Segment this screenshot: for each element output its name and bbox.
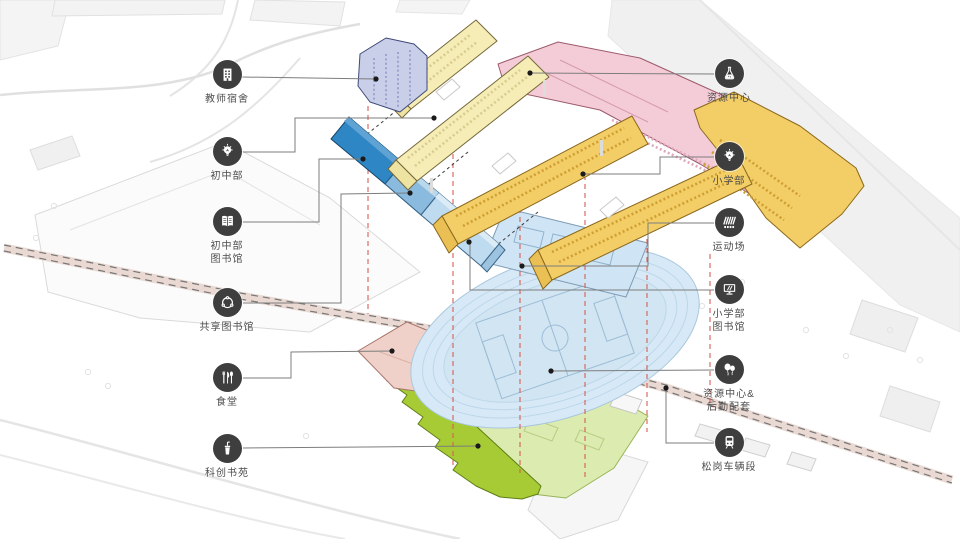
callout-label: 松岗车辆段 <box>670 461 788 474</box>
callout-label: 食堂 <box>168 396 286 409</box>
callout-teacher-dorm: 教师宿舍 <box>168 60 286 106</box>
track-icon <box>715 208 744 237</box>
callout-science-book-garden: 科创书苑 <box>168 434 286 480</box>
drink-icon <box>213 434 242 463</box>
callout-label: 小学部图书馆 <box>670 308 788 334</box>
callout-middle-school-library: 初中部图书馆 <box>168 207 286 266</box>
monitor-icon <box>715 275 744 304</box>
building-icon <box>213 60 242 89</box>
callout-label: 科创书苑 <box>168 467 286 480</box>
bulb-icon <box>715 142 744 171</box>
callout-label: 教师宿舍 <box>168 93 286 106</box>
callout-shared-library: 共享图书馆 <box>168 288 286 334</box>
bulb-icon <box>213 137 242 166</box>
callout-sports-field: 运动场 <box>670 208 788 254</box>
diagram-stage: 教师宿舍 初中部 初中部图书馆 共享图书馆 食堂 <box>0 0 960 539</box>
train-icon <box>715 428 744 457</box>
flask-icon <box>715 59 744 88</box>
callout-label: 资源中心 <box>670 92 788 105</box>
callout-resource-logistics: 资源中心&后勤配套 <box>670 355 788 414</box>
callout-label: 初中部 <box>168 170 286 183</box>
callout-primary-school: 小学部 <box>670 142 788 188</box>
callout-resource-center: 资源中心 <box>670 59 788 105</box>
callout-label: 小学部 <box>670 175 788 188</box>
utensils-icon <box>213 363 242 392</box>
callout-canteen: 食堂 <box>168 363 286 409</box>
share-icon <box>213 288 242 317</box>
callout-primary-school-library: 小学部图书馆 <box>670 275 788 334</box>
callout-label: 共享图书馆 <box>168 321 286 334</box>
book-icon <box>213 207 242 236</box>
balloons-icon <box>715 355 744 384</box>
callout-label: 初中部图书馆 <box>168 240 286 266</box>
callout-label: 资源中心&后勤配套 <box>670 388 788 414</box>
callout-label: 运动场 <box>670 241 788 254</box>
callout-middle-school: 初中部 <box>168 137 286 183</box>
site-diagram <box>0 0 960 539</box>
callout-songgang-depot: 松岗车辆段 <box>670 428 788 474</box>
